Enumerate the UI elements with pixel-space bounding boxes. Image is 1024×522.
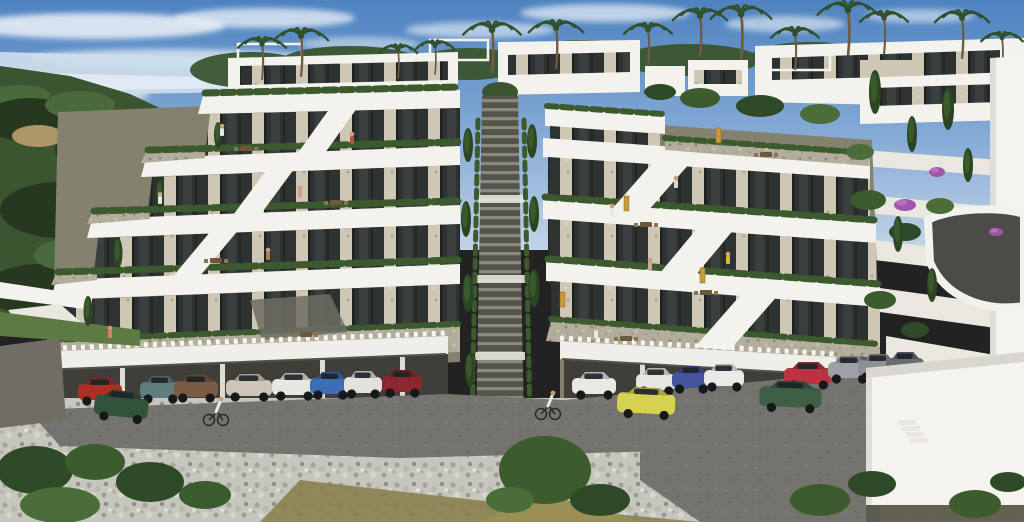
hillside-clearing: [12, 125, 64, 147]
bougainvillea-bush: [896, 200, 907, 206]
cypress-tree-icon: [463, 274, 474, 312]
amber-door: [716, 128, 721, 143]
architectural-render: Photorealistic render of a terraced hill…: [0, 0, 1024, 522]
person: [610, 204, 615, 216]
shrub: [790, 484, 850, 516]
amber-door: [560, 292, 565, 307]
cypress-tree-icon: [529, 269, 540, 307]
shrub: [736, 95, 784, 117]
shrub: [864, 291, 896, 309]
person: [350, 132, 355, 144]
person: [220, 124, 225, 136]
cypress-tree-icon: [963, 148, 973, 182]
cypress-tree-icon: [529, 196, 539, 232]
cypress-tree-icon: [465, 353, 475, 387]
curved-driveway: [928, 209, 1024, 307]
amber-door: [624, 196, 629, 211]
shrub: [65, 444, 125, 480]
white-corner-building: [866, 352, 1024, 522]
shrub: [848, 471, 896, 497]
cloud: [175, 8, 355, 28]
shrub: [570, 484, 630, 516]
cypress-tree-icon: [893, 216, 903, 252]
cypress-tree-icon: [927, 268, 937, 302]
cypress-tree-icon: [114, 238, 123, 268]
shrub: [901, 322, 929, 338]
bougainvillea-bush: [931, 168, 939, 173]
shrub: [800, 104, 840, 124]
cypress-tree-icon: [527, 124, 537, 158]
person: [674, 176, 679, 188]
cypress-tree-icon: [84, 296, 93, 326]
person: [726, 252, 731, 264]
cypress-tree-icon: [461, 201, 471, 237]
shrub: [0, 446, 73, 494]
cypress-tree-icon: [942, 88, 954, 130]
shrub: [846, 144, 874, 160]
bougainvillea-bush: [990, 228, 997, 232]
shrub: [486, 487, 534, 513]
person: [158, 192, 163, 204]
shrub: [680, 88, 720, 108]
amber-door: [700, 268, 705, 283]
shrub: [179, 481, 231, 509]
person: [648, 258, 653, 270]
person: [594, 326, 599, 338]
cloud: [520, 4, 690, 22]
cypress-tree-icon: [907, 116, 917, 152]
cypress-tree-icon: [869, 70, 881, 114]
shrub: [850, 190, 886, 210]
shrub: [949, 490, 1001, 518]
shrub: [644, 84, 676, 100]
person: [108, 326, 113, 338]
scene-canvas: Photorealistic render of a terraced hill…: [0, 0, 1024, 522]
shrub: [116, 462, 184, 502]
cypress-tree-icon: [463, 128, 473, 162]
shrub: [20, 487, 100, 522]
shrub: [926, 198, 954, 214]
person: [266, 248, 271, 260]
person: [298, 186, 303, 198]
